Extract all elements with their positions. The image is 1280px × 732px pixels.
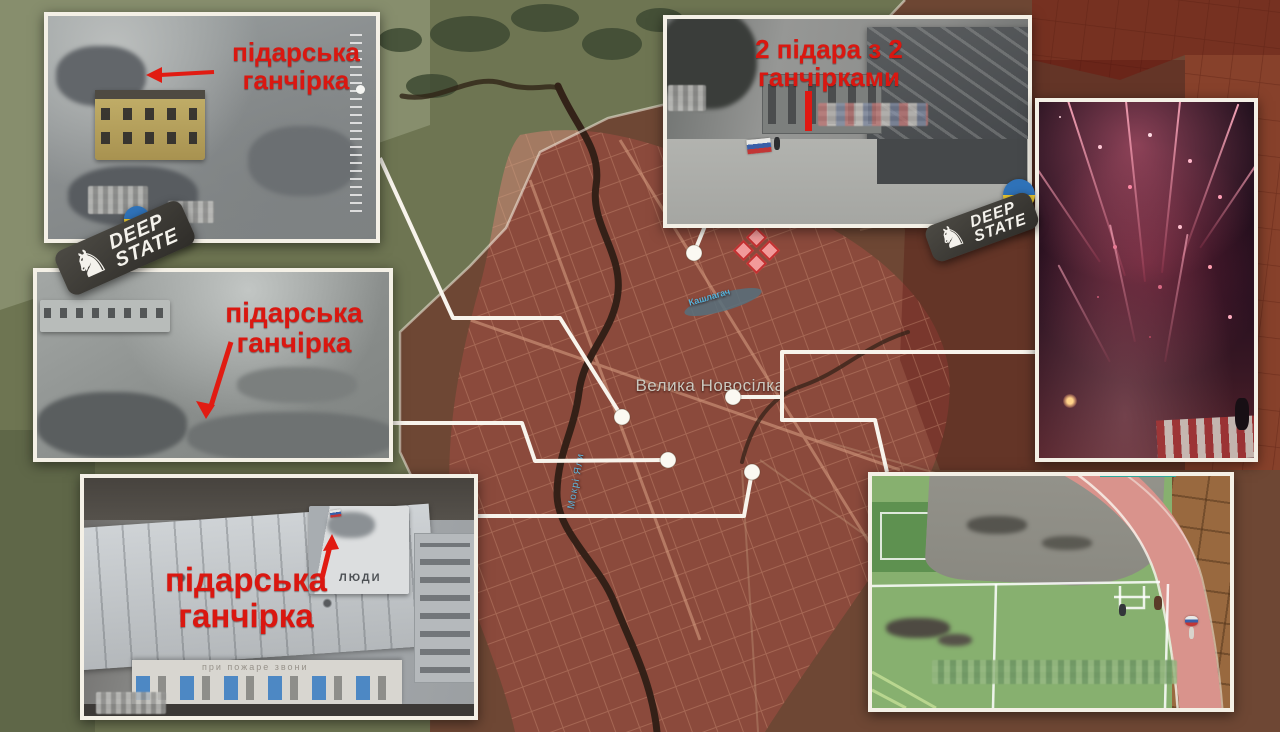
flare-streak <box>1057 264 1110 362</box>
flare-burst <box>1063 394 1077 408</box>
spark-dots <box>1059 116 1061 118</box>
flare-streak <box>1035 121 1101 263</box>
connector-middle-left <box>393 423 668 461</box>
censored-patch <box>668 85 706 111</box>
soldier-figure <box>774 137 780 150</box>
chess-knight-icon: ♞ <box>67 239 114 288</box>
ru-flag <box>746 138 771 154</box>
map-point <box>660 452 676 468</box>
inset-photo-fireworks <box>1035 98 1258 462</box>
inset-photo-top-left: підарська ганчірка <box>44 12 380 243</box>
connector-bottom-left <box>478 472 752 516</box>
inset-photo-middle-left: підарська ганчірка <box>33 268 393 462</box>
red-arrow <box>37 272 389 458</box>
flare-streak <box>1109 224 1136 342</box>
pitch-lines <box>872 582 1168 708</box>
long-dark-building <box>877 139 1027 184</box>
map-point <box>725 389 741 405</box>
chess-knight-icon: ♞ <box>935 219 971 256</box>
figure <box>1154 596 1162 610</box>
red-arrow <box>84 478 474 716</box>
inset-photo-stadium <box>868 472 1234 712</box>
debris <box>938 634 972 646</box>
inset-photo-top-middle: 2 підара з 2 ганчірками <box>663 15 1032 228</box>
flare-streak <box>1123 98 1146 282</box>
figure <box>1119 604 1126 616</box>
map-point <box>686 245 702 261</box>
map-point <box>744 464 760 480</box>
map-point <box>614 409 630 425</box>
annotated-map-composite: Велика Новосілка Кашлагач Мокрі Яли <box>0 0 1280 732</box>
inset-photo-bottom-left: ЛЮДИ при пожаре звони підарська ганчірка <box>80 474 478 720</box>
red-pointer-bar <box>805 91 812 131</box>
red-arrow <box>48 16 376 239</box>
flare-streak <box>1164 234 1189 362</box>
person-silhouette <box>1235 398 1249 430</box>
teal-accent <box>1100 472 1176 477</box>
censored-patch <box>932 660 1177 684</box>
connector-top-left <box>380 158 622 417</box>
flare-streak <box>1161 98 1182 273</box>
flare-streak <box>1065 98 1126 276</box>
flare-streak <box>1181 104 1239 260</box>
censored-patch <box>818 103 928 126</box>
debris <box>886 618 950 638</box>
connector-fireworks <box>782 352 1035 472</box>
ru-flag <box>1185 616 1198 626</box>
flag-bearer <box>1189 627 1194 639</box>
caption-top-middle: 2 підара з 2 ганчірками <box>729 35 929 91</box>
